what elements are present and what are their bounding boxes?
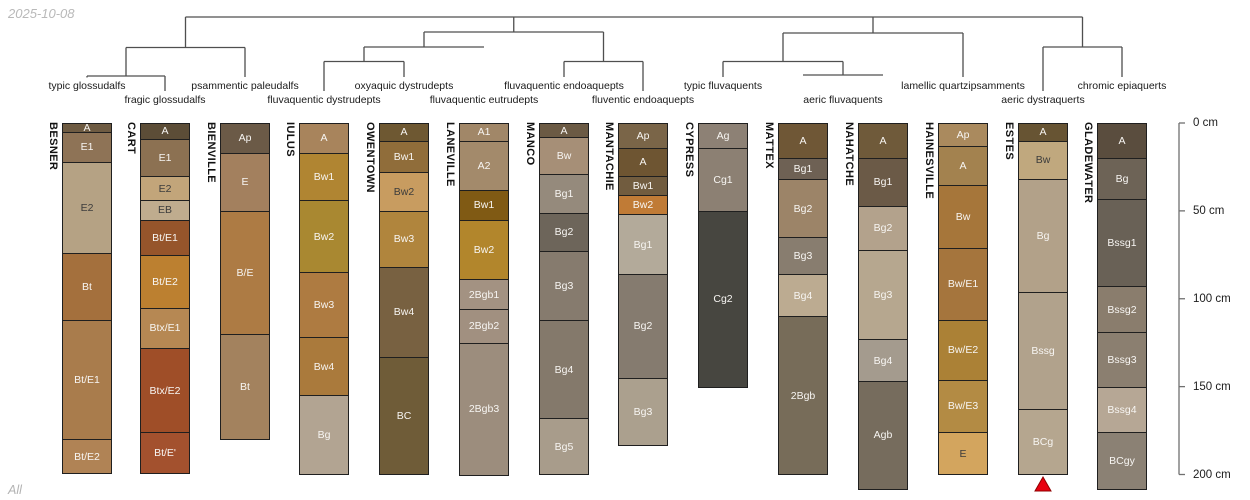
- horizon-bw1: Bw1: [618, 176, 668, 196]
- profile-name-label: HAINESVILLE: [923, 122, 935, 199]
- horizon-label: Cg1: [713, 174, 732, 186]
- horizon-label: Bg5: [555, 441, 574, 453]
- horizon-bw: Bw: [539, 137, 589, 175]
- profile-name-label: MANCO: [524, 122, 536, 166]
- horizon-2bgb1: 2Bgb1: [459, 279, 509, 310]
- horizon-ap: Ap: [618, 123, 668, 149]
- taxon-label: fluvaquentic endoaquepts: [504, 80, 624, 92]
- horizon-label: Bw3: [394, 233, 414, 245]
- horizon-bg: Bg: [1018, 179, 1068, 292]
- horizon-label: Bw/E1: [948, 278, 978, 290]
- horizon-label: Bssg2: [1107, 304, 1136, 316]
- horizon-label: Bw3: [314, 299, 334, 311]
- horizon-bte: Bt/E': [140, 432, 190, 473]
- horizon-label: Bt/E2: [74, 451, 100, 463]
- taxon-label: typic glossudalfs: [48, 80, 125, 92]
- profile-name-label: OWENTOWN: [364, 122, 376, 193]
- horizon-bw3: Bw3: [379, 211, 429, 268]
- horizon-e: E: [220, 153, 270, 212]
- horizon-label: A: [320, 132, 327, 144]
- horizon-label: B/E: [237, 267, 254, 279]
- horizon-label: A: [879, 135, 886, 147]
- profile-name-label: GLADEWATER: [1082, 122, 1094, 203]
- horizon-label: Agb: [874, 429, 893, 441]
- horizon-label: 2Bgb: [791, 390, 816, 402]
- horizon-label: A: [799, 135, 806, 147]
- horizon-label: Ap: [957, 129, 970, 141]
- horizon-label: Bw1: [394, 151, 414, 163]
- horizon-bwe3: Bw/E3: [938, 380, 988, 434]
- horizon-bg3: Bg3: [539, 251, 589, 321]
- horizon-label: Bw: [1036, 154, 1051, 166]
- horizon-bssg2: Bssg2: [1097, 286, 1147, 333]
- horizon-label: Bw4: [314, 361, 334, 373]
- horizon-label: Bw: [557, 150, 572, 162]
- horizon-bssg4: Bssg4: [1097, 387, 1147, 434]
- horizon-label: Bw2: [474, 244, 494, 256]
- horizon-a2: A2: [459, 141, 509, 191]
- plot-date: 2025-10-08: [8, 6, 75, 21]
- plot-footer: All: [8, 483, 22, 497]
- horizon-label: Bg3: [874, 289, 893, 301]
- horizon-bw2: Bw2: [379, 172, 429, 212]
- horizon-label: A: [959, 160, 966, 172]
- horizon-a: A: [299, 123, 349, 154]
- horizon-label: Bg2: [634, 320, 653, 332]
- horizon-label: Bw1: [633, 180, 653, 192]
- horizon-label: E: [959, 448, 966, 460]
- horizon-label: Bt/E2: [152, 276, 178, 288]
- profile-name-label: IULUS: [284, 122, 296, 157]
- horizon-label: Bg3: [634, 406, 653, 418]
- horizon-bw1: Bw1: [459, 190, 509, 221]
- horizon-label: Bw2: [633, 199, 653, 211]
- horizon-label: Ap: [637, 130, 650, 142]
- horizon-label: Bw2: [394, 186, 414, 198]
- horizon-label: BC: [397, 410, 412, 422]
- horizon-label: A: [1118, 135, 1125, 147]
- taxon-label: fluventic endoaquepts: [592, 94, 694, 106]
- horizon-label: 2Bgb1: [469, 289, 499, 301]
- horizon-label: Bg1: [794, 163, 813, 175]
- horizon-label: Ag: [717, 130, 730, 142]
- horizon-label: Bg4: [794, 290, 813, 302]
- horizon-label: A: [639, 156, 646, 168]
- profile-name-label: MANTACHIE: [603, 122, 615, 191]
- horizon-label: Bt: [240, 381, 250, 393]
- horizon-bg2: Bg2: [539, 213, 589, 253]
- horizon-bcg: BCg: [1018, 409, 1068, 475]
- horizon-label: E: [241, 176, 248, 188]
- horizon-ag: Ag: [698, 123, 748, 149]
- horizon-label: Bw/E3: [948, 400, 978, 412]
- horizon-label: Bssg3: [1107, 354, 1136, 366]
- horizon-bw2: Bw2: [299, 200, 349, 273]
- horizon-bg3: Bg3: [618, 378, 668, 446]
- horizon-bg5: Bg5: [539, 418, 589, 475]
- profile-name-label: ESTES: [1003, 122, 1015, 160]
- horizon-bw3: Bw3: [299, 272, 349, 338]
- horizon-label: A2: [478, 160, 491, 172]
- horizon-label: Bt/E': [154, 447, 176, 459]
- horizon-label: A: [560, 125, 567, 137]
- horizon-label: Btx/E1: [150, 322, 181, 334]
- profile-name-label: LANEVILLE: [444, 122, 456, 187]
- horizon-a: A: [938, 146, 988, 186]
- profile-name-label: NAHATCHE: [843, 122, 855, 186]
- horizon-label: Bw1: [314, 171, 334, 183]
- horizon-label: Bg: [1037, 230, 1050, 242]
- horizon-bt: Bt: [220, 334, 270, 440]
- horizon-label: Btx/E2: [150, 385, 181, 397]
- horizon-bte2: Bt/E2: [62, 439, 112, 473]
- horizon-label: E1: [159, 152, 172, 164]
- taxon-label: fluvaquentic dystrudepts: [267, 94, 380, 106]
- horizon-2bgb3: 2Bgb3: [459, 343, 509, 476]
- horizon-be: B/E: [220, 211, 270, 335]
- depth-tick-label: 100 cm: [1193, 293, 1231, 305]
- horizon-label: Bw4: [394, 306, 414, 318]
- horizon-label: 2Bgb3: [469, 403, 499, 415]
- taxon-label: fragic glossudalfs: [124, 94, 205, 106]
- depth-tick-label: 150 cm: [1193, 381, 1231, 393]
- horizon-2bgb: 2Bgb: [778, 316, 828, 475]
- horizon-2bgb2: 2Bgb2: [459, 309, 509, 343]
- horizon-label: Bg2: [794, 203, 813, 215]
- horizon-a: A: [539, 123, 589, 138]
- horizon-a1: A1: [459, 123, 509, 142]
- horizon-bg: Bg: [299, 395, 349, 475]
- horizon-label: 2Bgb2: [469, 320, 499, 332]
- profile-name-label: BESNER: [47, 122, 59, 170]
- horizon-cg1: Cg1: [698, 148, 748, 212]
- horizon-bg1: Bg1: [539, 174, 589, 214]
- depth-tick-label: 0 cm: [1193, 117, 1218, 129]
- horizon-label: Cg2: [713, 293, 732, 305]
- horizon-label: E2: [159, 183, 172, 195]
- horizon-a: A: [618, 148, 668, 177]
- taxon-label: fluvaquentic eutrudepts: [430, 94, 539, 106]
- horizon-label: Bg2: [874, 222, 893, 234]
- horizon-bg3: Bg3: [858, 250, 908, 341]
- horizon-bw4: Bw4: [379, 267, 429, 358]
- horizon-label: A: [161, 125, 168, 137]
- depth-tick-label: 50 cm: [1193, 205, 1224, 217]
- horizon-bw2: Bw2: [459, 220, 509, 281]
- horizon-label: Bt/E1: [152, 232, 178, 244]
- horizon-bte2: Bt/E2: [140, 255, 190, 309]
- horizon-bssg1: Bssg1: [1097, 199, 1147, 288]
- profile-marker-triangle: [1035, 477, 1051, 491]
- horizon-bg4: Bg4: [858, 339, 908, 382]
- taxon-label: typic fluvaquents: [684, 80, 762, 92]
- depth-tick-label: 200 cm: [1193, 469, 1231, 481]
- horizon-bssg: Bssg: [1018, 292, 1068, 411]
- profile-name-label: CYPRESS: [683, 122, 695, 177]
- horizon-bg4: Bg4: [539, 320, 589, 419]
- horizon-label: Bg: [318, 429, 331, 441]
- horizon-label: Bw1: [474, 199, 494, 211]
- horizon-label: BCgy: [1109, 455, 1135, 467]
- soil-profile-dendrogram-plot: 2025-10-08 All typic glossudalfsfragic g…: [0, 0, 1250, 500]
- horizon-btxe2: Btx/E2: [140, 348, 190, 433]
- horizon-a: A: [778, 123, 828, 159]
- horizon-bg: Bg: [1097, 158, 1147, 199]
- horizon-label: Bw2: [314, 231, 334, 243]
- horizon-e: E: [938, 432, 988, 475]
- horizon-bg2: Bg2: [618, 274, 668, 379]
- horizon-label: Bg2: [555, 226, 574, 238]
- horizon-label: Bssg: [1031, 345, 1054, 357]
- horizon-ap: Ap: [220, 123, 270, 154]
- horizon-label: BCg: [1033, 436, 1053, 448]
- horizon-label: Bg: [1116, 173, 1129, 185]
- profile-name-label: BIENVILLE: [205, 122, 217, 183]
- horizon-a: A: [379, 123, 429, 142]
- horizon-label: Bg3: [794, 250, 813, 262]
- horizon-bw4: Bw4: [299, 337, 349, 396]
- taxon-label: lamellic quartzipsamments: [901, 80, 1025, 92]
- horizon-label: Bg1: [874, 176, 893, 188]
- horizon-bssg3: Bssg3: [1097, 332, 1147, 387]
- profile-name-label: MATTEX: [763, 122, 775, 169]
- horizon-bg1: Bg1: [858, 158, 908, 206]
- taxon-label: aeric fluvaquents: [803, 94, 882, 106]
- horizon-a: A: [1018, 123, 1068, 142]
- horizon-a: A: [858, 123, 908, 159]
- horizon-label: A: [400, 126, 407, 138]
- horizon-a: A: [140, 123, 190, 140]
- horizon-label: EB: [158, 204, 172, 216]
- horizon-bw: Bw: [1018, 141, 1068, 181]
- horizon-label: Bg3: [555, 280, 574, 292]
- horizon-bw1: Bw1: [299, 153, 349, 201]
- horizon-ap: Ap: [938, 123, 988, 147]
- horizon-bwe2: Bw/E2: [938, 320, 988, 381]
- horizon-bg1: Bg1: [618, 214, 668, 275]
- horizon-btxe1: Btx/E1: [140, 308, 190, 349]
- horizon-bg2: Bg2: [778, 179, 828, 238]
- horizon-bwe1: Bw/E1: [938, 248, 988, 321]
- horizon-label: E2: [81, 202, 94, 214]
- horizon-label: A1: [478, 126, 491, 138]
- horizon-label: Bg1: [634, 239, 653, 251]
- horizon-bg1: Bg1: [778, 158, 828, 180]
- horizon-bg4: Bg4: [778, 274, 828, 317]
- horizon-bt: Bt: [62, 253, 112, 321]
- horizon-bcgy: BCgy: [1097, 432, 1147, 489]
- profile-name-label: CART: [125, 122, 137, 154]
- horizon-bw2: Bw2: [618, 195, 668, 215]
- taxon-label: aeric dystraquerts: [1001, 94, 1084, 106]
- horizon-bte1: Bt/E1: [62, 320, 112, 441]
- horizon-label: Ap: [239, 132, 252, 144]
- horizon-label: Bt: [82, 281, 92, 293]
- horizon-label: Bssg4: [1107, 404, 1136, 416]
- horizon-bte1: Bt/E1: [140, 220, 190, 256]
- horizon-label: Bt/E1: [74, 374, 100, 386]
- horizon-label: Bw: [956, 211, 971, 223]
- horizon-e1: E1: [140, 139, 190, 177]
- horizon-bg2: Bg2: [858, 206, 908, 251]
- horizon-e2: E2: [62, 162, 112, 254]
- horizon-bc: BC: [379, 357, 429, 476]
- horizon-cg2: Cg2: [698, 211, 748, 388]
- taxon-label: chromic epiaquerts: [1078, 80, 1167, 92]
- horizon-label: A: [1039, 126, 1046, 138]
- horizon-bw1: Bw1: [379, 141, 429, 174]
- horizon-label: Bw/E2: [948, 344, 978, 356]
- horizon-e1: E1: [62, 132, 112, 163]
- horizon-label: E1: [81, 141, 94, 153]
- horizon-agb: Agb: [858, 381, 908, 489]
- taxon-label: oxyaquic dystrudepts: [355, 80, 454, 92]
- horizon-eb: EB: [140, 200, 190, 220]
- horizon-label: Bssg1: [1107, 237, 1136, 249]
- horizon-bw: Bw: [938, 185, 988, 249]
- horizon-label: Bg4: [555, 364, 574, 376]
- horizon-label: Bg4: [874, 355, 893, 367]
- horizon-e2: E2: [140, 176, 190, 202]
- horizon-a: A: [1097, 123, 1147, 159]
- horizon-bg3: Bg3: [778, 237, 828, 275]
- taxon-label: psammentic paleudalfs: [191, 80, 298, 92]
- horizon-label: Bg1: [555, 188, 574, 200]
